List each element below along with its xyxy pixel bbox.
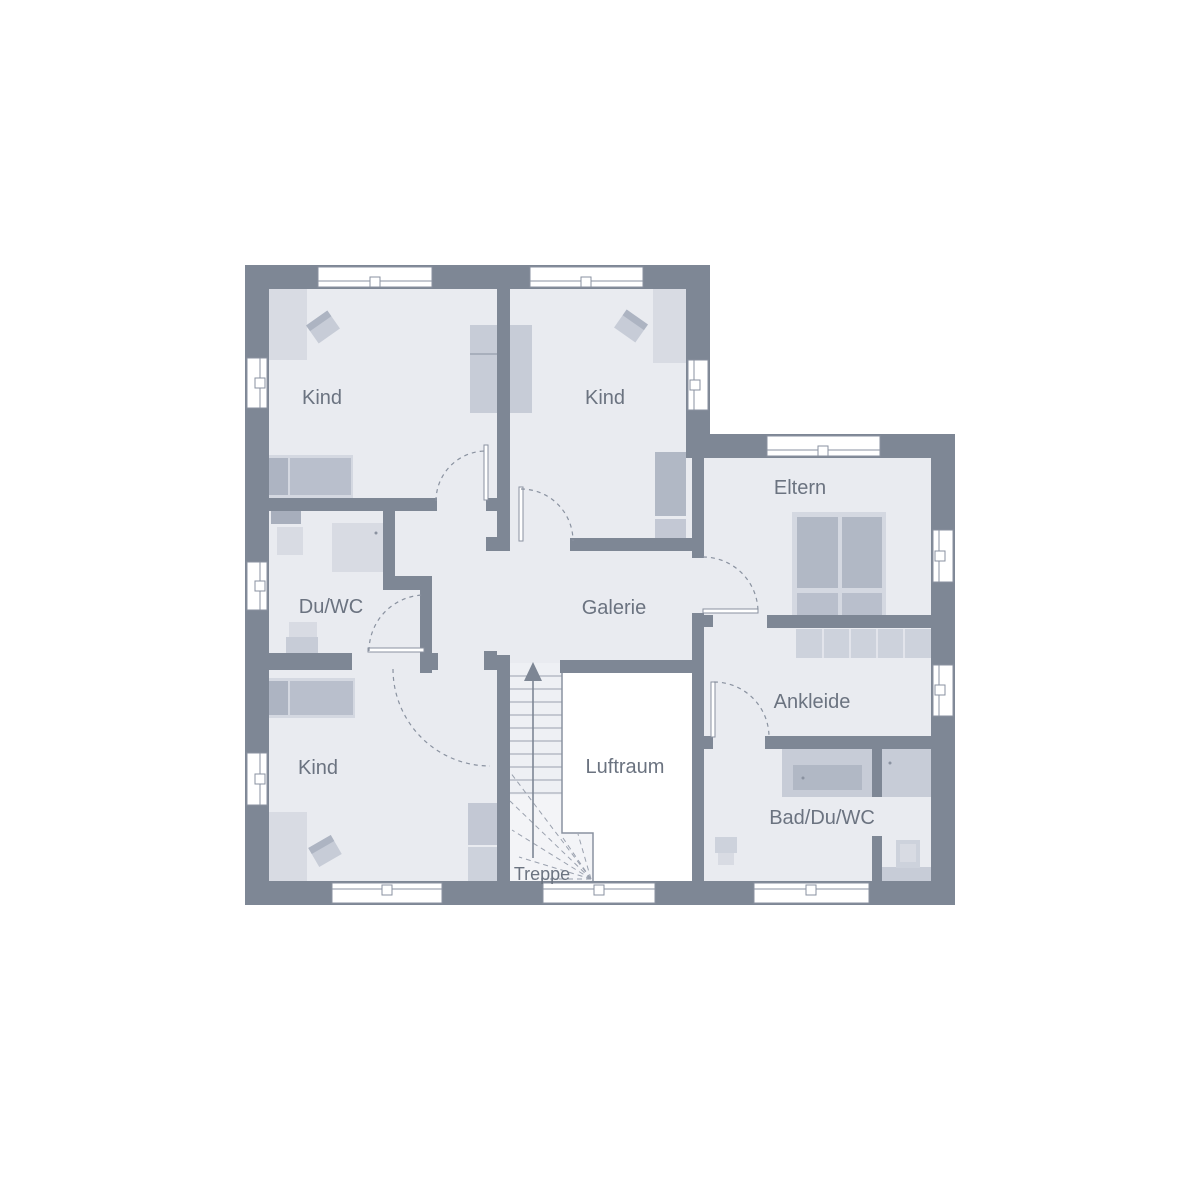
floor-plan-svg: Kind Kind Eltern Du/WC Galerie Ankleide … [0, 0, 1200, 1200]
window [767, 436, 880, 456]
closet-row [796, 629, 931, 658]
desk [269, 289, 307, 360]
room-label-galerie: Galerie [582, 597, 646, 619]
door-leaf [368, 648, 424, 652]
toilet [286, 622, 318, 653]
window [688, 360, 708, 410]
room-label-eltern: Eltern [774, 477, 826, 499]
room-label-kind-top-middle: Kind [585, 387, 625, 409]
window [530, 267, 643, 287]
washbasin [277, 527, 303, 555]
double-bed [792, 512, 886, 620]
door-leaf [703, 609, 758, 613]
wardrobe [655, 452, 686, 538]
wardrobe [468, 803, 497, 881]
window [933, 665, 953, 716]
window [318, 267, 432, 287]
desk [269, 812, 307, 881]
door-leaf [519, 487, 523, 541]
window [247, 753, 267, 805]
door-leaf [484, 445, 488, 500]
floor-plan-page: Kind Kind Eltern Du/WC Galerie Ankleide … [0, 0, 1200, 1200]
duct [271, 511, 301, 524]
room-label-luftraum: Luftraum [586, 756, 665, 778]
toilet [715, 837, 737, 865]
shower [882, 749, 931, 797]
bathtub [782, 749, 872, 797]
room-label-kind-bottom-left: Kind [298, 757, 338, 779]
room-label-ankleide: Ankleide [774, 691, 851, 713]
bed [263, 455, 353, 498]
window [543, 883, 655, 903]
door-leaf [711, 682, 715, 737]
window [332, 883, 442, 903]
room-label-du-wc: Du/WC [299, 596, 363, 618]
shower [332, 523, 383, 572]
room-label-kind-top-left: Kind [302, 387, 342, 409]
room-label-treppe: Treppe [514, 864, 570, 884]
window [247, 358, 267, 408]
room-label-bad-du-wc: Bad/Du/WC [769, 807, 875, 829]
window [933, 530, 953, 582]
window [754, 883, 869, 903]
bed [263, 678, 355, 718]
desk [653, 289, 686, 363]
window [247, 562, 267, 610]
